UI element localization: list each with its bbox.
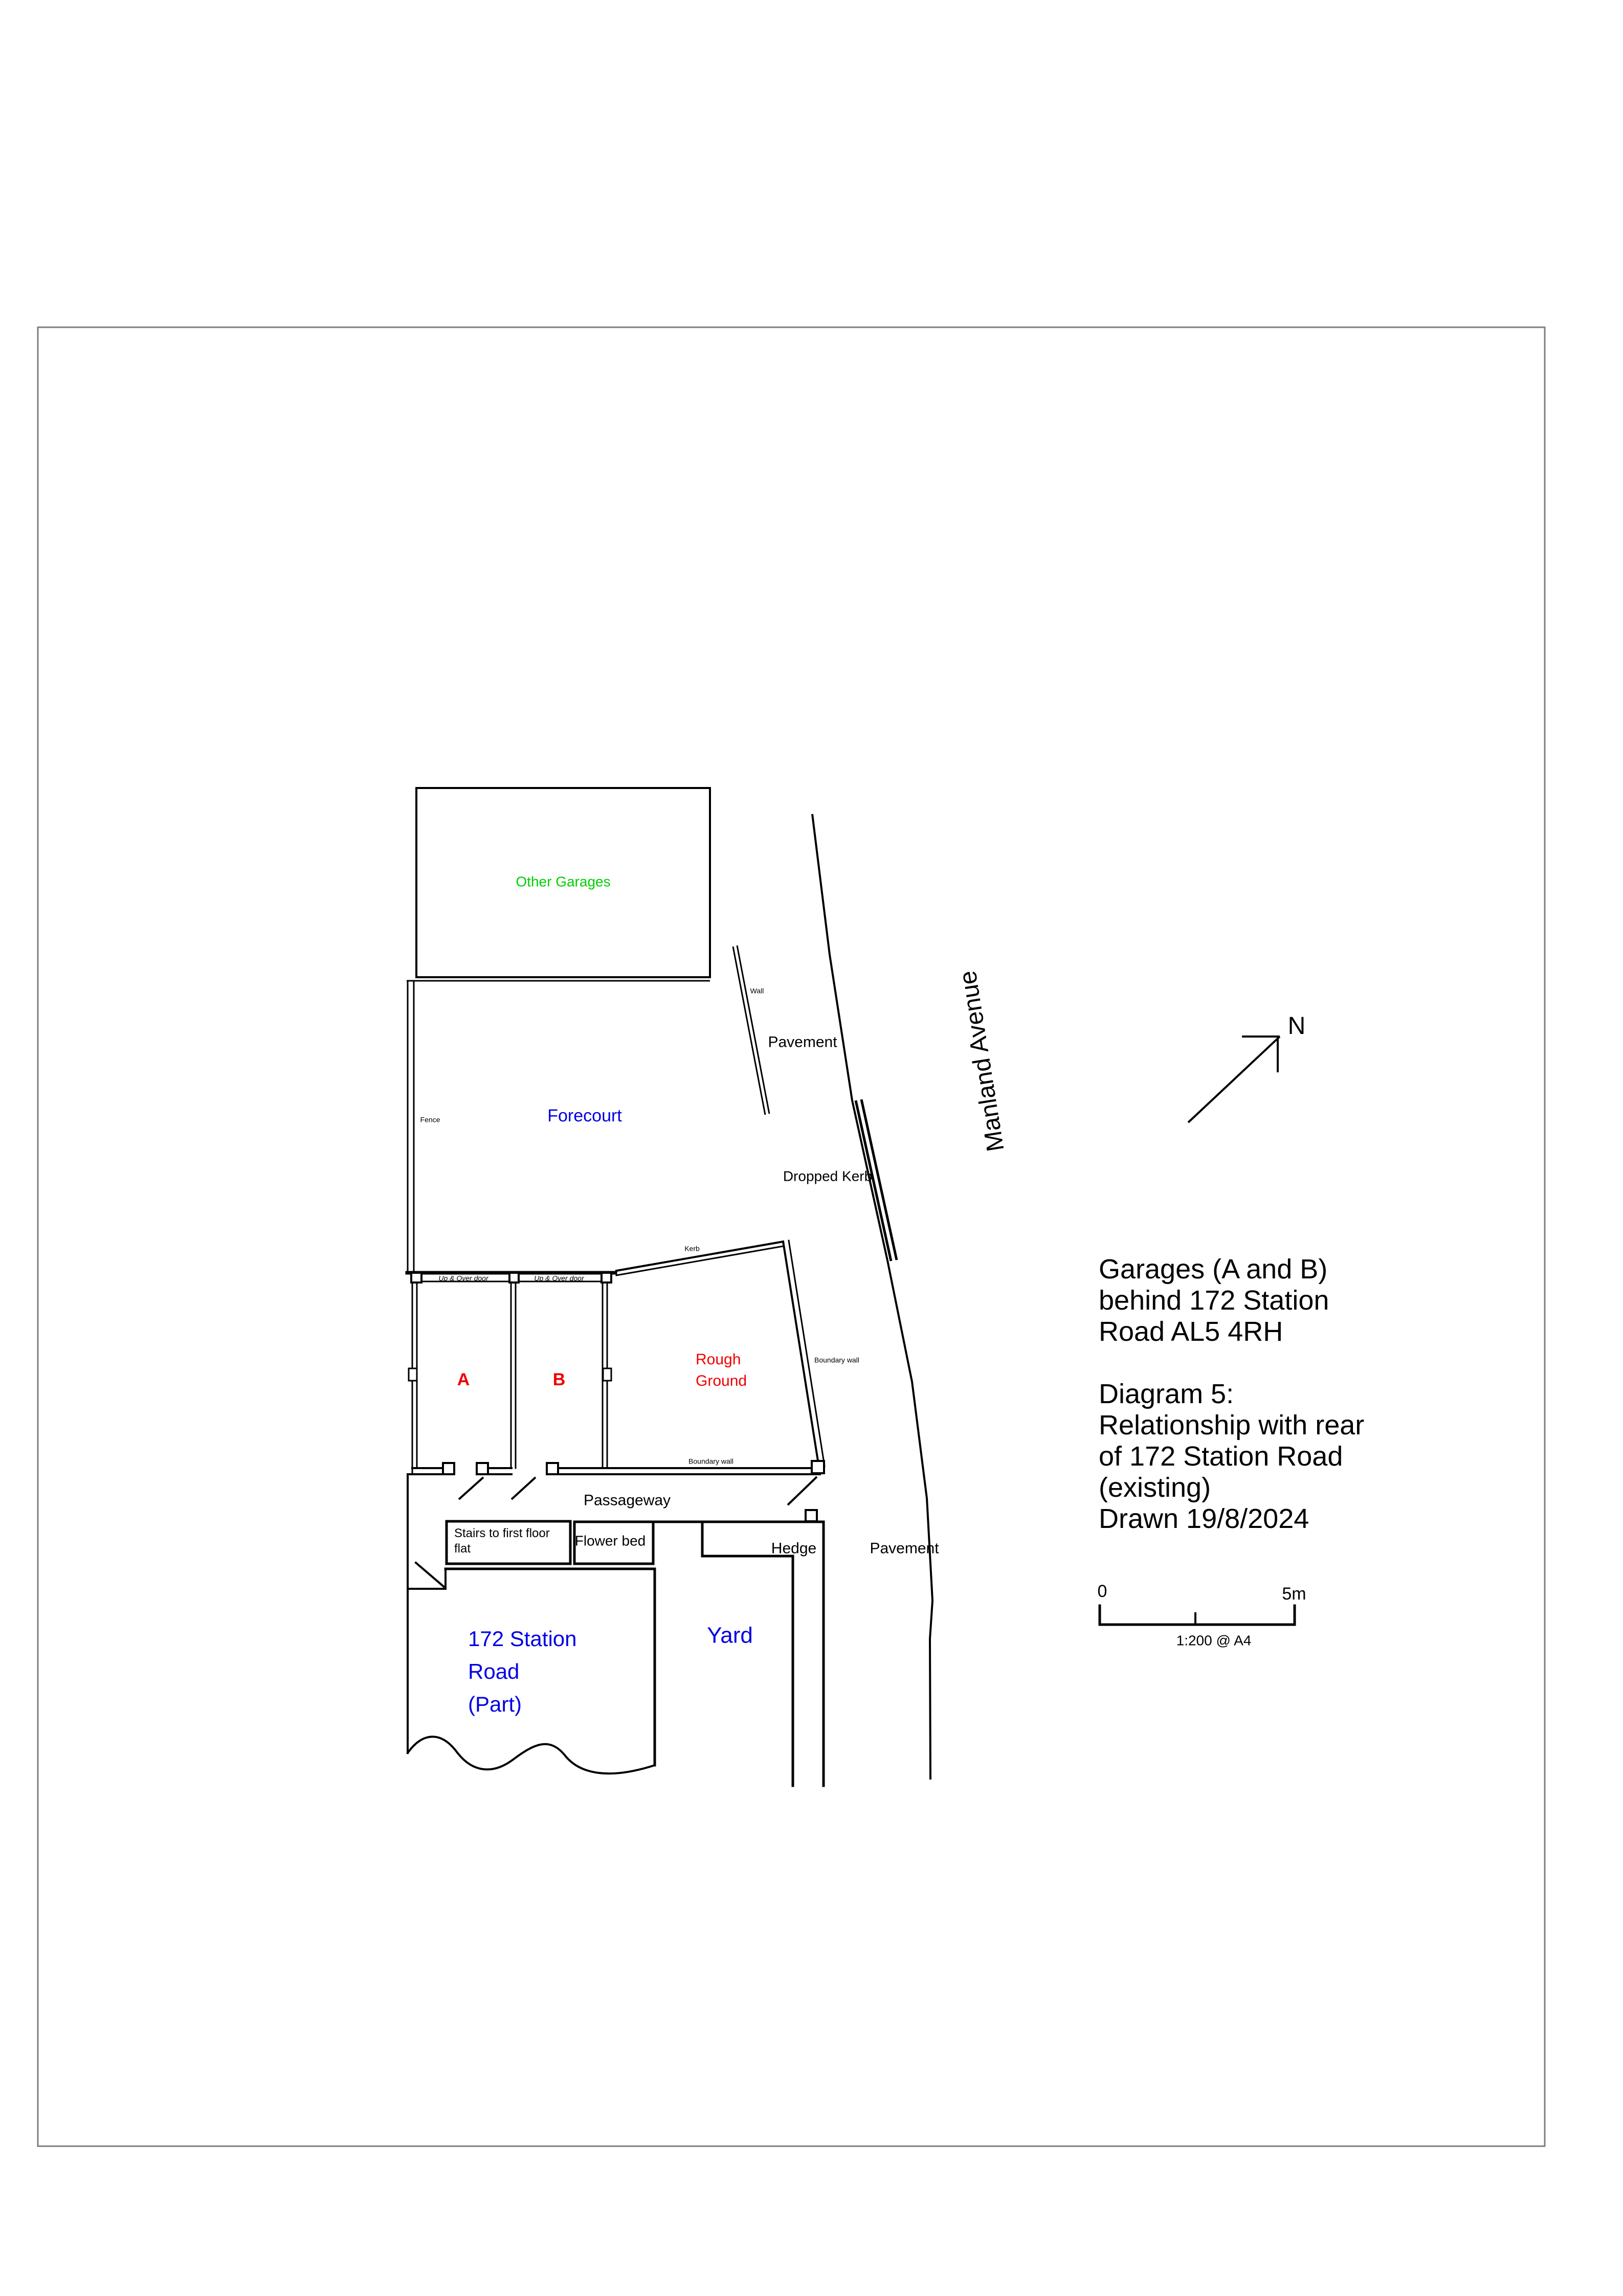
kerb-label: Kerb xyxy=(684,1244,700,1253)
stairs-label: Stairs to first floor flat xyxy=(454,1526,550,1557)
north-label: N xyxy=(1288,1011,1306,1042)
scale-ratio-label: 1:200 @ A4 xyxy=(1176,1632,1252,1650)
fence-label: Fence xyxy=(420,1115,440,1124)
up-over-door-a-label: Up & Over door xyxy=(438,1274,488,1283)
boundary-wall-right-label: Boundary wall xyxy=(814,1356,859,1365)
wall-label: Wall xyxy=(750,986,764,996)
pavement-upper-label: Pavement xyxy=(768,1032,837,1052)
scale-max-label: 5m xyxy=(1282,1583,1306,1605)
wall-line xyxy=(733,946,769,1115)
rough-ground-label: Rough Ground xyxy=(696,1349,747,1392)
passageway-label: Passageway xyxy=(584,1491,671,1510)
garage-a-label: A xyxy=(457,1369,470,1391)
north-arrow xyxy=(1188,1037,1280,1122)
flower-bed-label: Flower bed xyxy=(575,1532,646,1550)
page-canvas: Other Garages Forecourt Fence Wall Pavem… xyxy=(0,0,1623,2296)
garage-b-label: B xyxy=(553,1369,566,1391)
house-label: 172 Station Road (Part) xyxy=(468,1623,577,1721)
scale-bar-lines xyxy=(1100,1606,1295,1625)
title-block: Garages (A and B) behind 172 Station Roa… xyxy=(1099,1254,1364,1535)
hedge-label: Hedge xyxy=(771,1539,816,1558)
pavement-lower-label: Pavement xyxy=(870,1539,939,1558)
yard-label: Yard xyxy=(707,1622,753,1650)
boundary-wall-bottom-label: Boundary wall xyxy=(688,1457,733,1466)
other-garages-label: Other Garages xyxy=(516,873,610,891)
dropped-kerb-label: Dropped Kerb xyxy=(783,1167,872,1185)
scale-zero-label: 0 xyxy=(1098,1581,1107,1603)
road-edge xyxy=(812,814,932,1780)
page-border xyxy=(38,327,1545,2146)
up-over-door-b-label: Up & Over door xyxy=(534,1274,584,1283)
site-plan-drawing xyxy=(0,0,1623,2296)
forecourt-label: Forecourt xyxy=(547,1105,622,1127)
